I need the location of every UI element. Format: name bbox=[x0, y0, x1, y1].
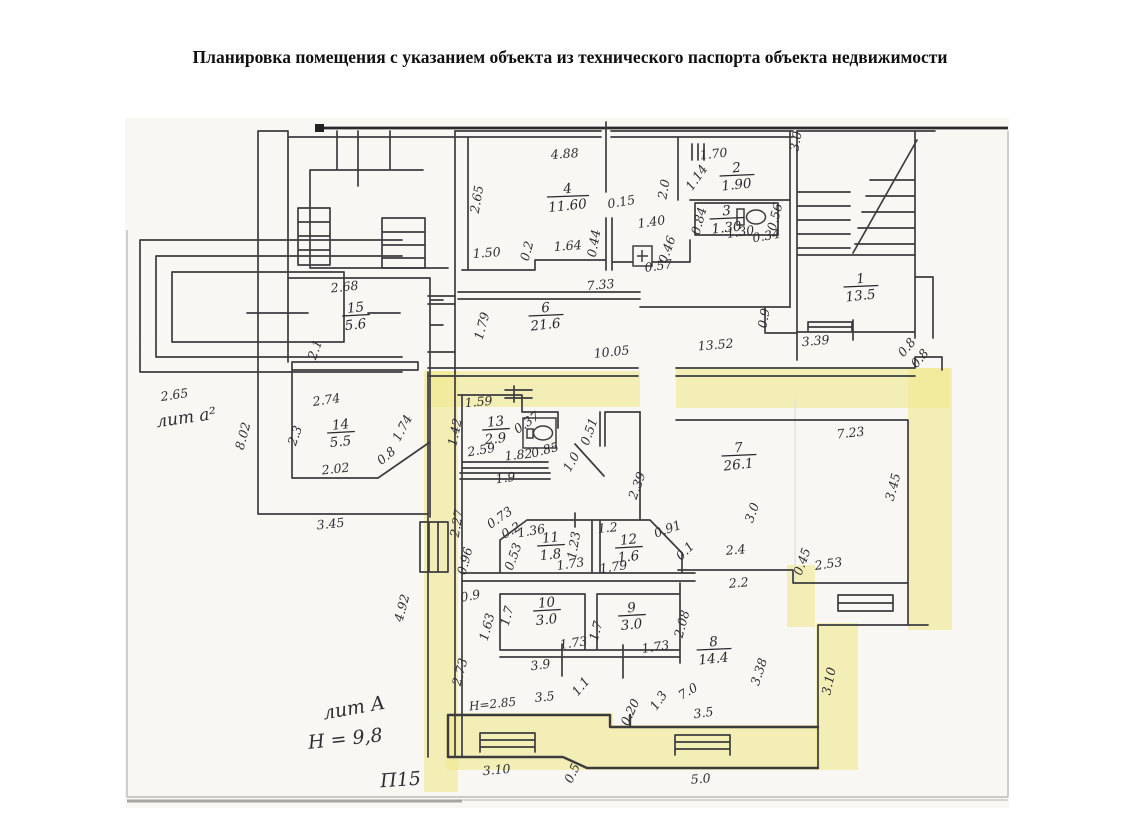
room-area: 14.4 bbox=[698, 649, 730, 668]
room-number: 2 bbox=[730, 160, 741, 177]
room-number: 4 bbox=[561, 181, 572, 198]
dimension-label: 2.2 bbox=[727, 574, 749, 591]
room-area: 1.90 bbox=[721, 175, 753, 194]
dimension-label: 3.5 bbox=[534, 688, 555, 705]
dimension-label: 3.5 bbox=[692, 704, 714, 722]
room-number: 10 bbox=[537, 594, 556, 612]
dimension-label: 5.0 bbox=[690, 770, 711, 787]
room-number: 1 bbox=[855, 271, 865, 288]
dimension-label: 1.82 bbox=[504, 446, 533, 464]
room-area: 5.5 bbox=[329, 433, 352, 451]
room-area: 5.6 bbox=[344, 316, 367, 334]
scan-blob bbox=[315, 124, 324, 132]
room-number: 3 bbox=[721, 203, 731, 220]
floor-plan: 411.6021.9031.30113.5155.6145.5621.6132.… bbox=[0, 0, 1125, 828]
room-area: 21.6 bbox=[529, 315, 562, 334]
dimension-label: 2.02 bbox=[320, 460, 350, 478]
dimension-label: 1.50 bbox=[472, 244, 501, 261]
room-number: 14 bbox=[331, 416, 350, 434]
dimension-label: 2.68 bbox=[329, 278, 359, 296]
dimension-label: 2.4 bbox=[724, 541, 746, 558]
dimension-label: 1.9 bbox=[494, 469, 516, 487]
dimension-label: 13.52 bbox=[697, 335, 734, 353]
room-area: 3.0 bbox=[620, 616, 643, 634]
room-number: 15 bbox=[346, 299, 365, 317]
room-number: 12 bbox=[619, 531, 638, 549]
dimension-label: 3.45 bbox=[316, 515, 345, 533]
dimension-label: 1.70 bbox=[699, 145, 728, 163]
room-area: 3.0 bbox=[535, 611, 558, 629]
plan-annotation: П15 bbox=[378, 768, 421, 793]
dimension-label: 1.2 bbox=[597, 519, 618, 536]
dimension-label: 4.88 bbox=[549, 145, 579, 162]
room-area: 26.1 bbox=[722, 455, 755, 474]
dimension-label: 3.39 bbox=[801, 332, 830, 349]
dimension-label: 7.23 bbox=[836, 424, 865, 442]
room-number: 13 bbox=[486, 413, 505, 431]
dimension-label: 3.9 bbox=[529, 656, 551, 674]
room-area: 13.5 bbox=[845, 286, 877, 305]
dimension-label: 1.64 bbox=[553, 237, 582, 254]
dimension-label: 3.10 bbox=[482, 761, 511, 778]
dimension-label: 7.33 bbox=[586, 276, 615, 293]
dimension-label: 1.59 bbox=[464, 393, 493, 410]
